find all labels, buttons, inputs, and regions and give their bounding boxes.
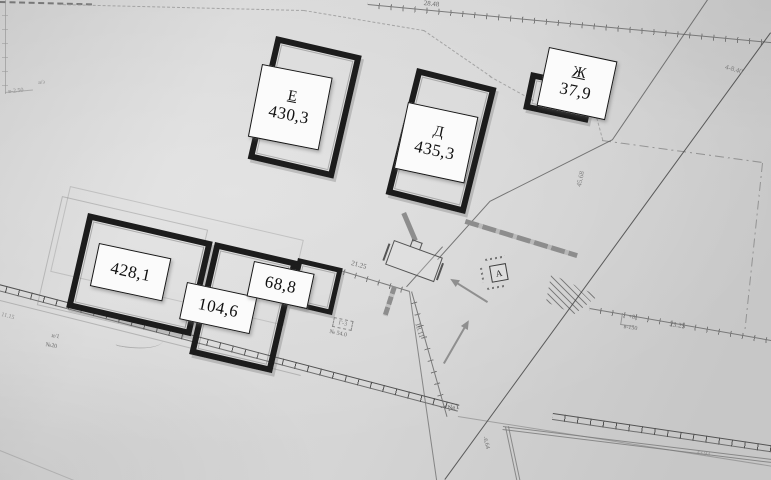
survey-line (409, 292, 437, 480)
direction-arrow-icon (452, 280, 488, 303)
gray-fence-segment (383, 285, 397, 316)
dimension-text: 21.25 (350, 260, 367, 271)
annotation-g3-box: Г-3 (332, 317, 354, 331)
boundary-dashed-line (304, 10, 424, 31)
building-area: 430,3 (267, 101, 311, 128)
building-area: 68,8 (263, 272, 298, 298)
building-area: 37,9 (558, 78, 593, 104)
dimension-text: 45.68 (576, 171, 586, 188)
boundary-dashed-line (423, 30, 491, 77)
building-letter: Е (286, 89, 298, 106)
survey-marker-ticks (485, 256, 505, 261)
site-plan-canvas: А Е 430,3 Д 435,3 Ж 37,9 428,1 104,6 68,… (0, 0, 771, 480)
annotation-g3-text: Г-3 (338, 320, 348, 328)
dimension-text: 43.93 (696, 450, 710, 458)
parcel-double-line (505, 426, 521, 480)
gate-tick (436, 263, 444, 280)
building-area: 435,3 (413, 137, 457, 165)
annotation-text: а/з (38, 79, 45, 86)
survey-marker-a: А (489, 263, 509, 283)
survey-line (612, 0, 708, 140)
boundary-dashdot-line (744, 163, 763, 332)
annotation-text: в-2.50 (8, 88, 24, 95)
dimension-text: №1 (447, 403, 460, 413)
building-area: 428,1 (109, 258, 153, 286)
gate-tick (382, 243, 390, 260)
annotation-text: и/1 (51, 333, 60, 340)
boundary-tick-line (367, 2, 771, 46)
dimension-text: 28.48 (423, 0, 439, 9)
dimension-text: -6.64 (481, 436, 490, 450)
label-building-d: Д 435,3 (394, 102, 479, 183)
survey-marker-ticks (480, 268, 485, 283)
corner-faint-line (0, 450, 74, 480)
annotation-text: №20 (45, 342, 58, 350)
gray-fence-segment (401, 212, 417, 242)
dimension-tick-line (332, 266, 410, 295)
annotation-leader-line (115, 331, 163, 354)
boundary-dashed-line (58, 4, 304, 11)
survey-marker-ticks (487, 285, 505, 290)
direction-arrow-icon (443, 322, 468, 364)
annotation-text: № 54.0 (329, 329, 348, 339)
gate-notch (410, 239, 423, 250)
building-area: 104,6 (196, 294, 240, 322)
left-boundary-ticks (2, 2, 8, 92)
gray-fence-segment (465, 219, 578, 258)
dimension-text: 23.25 (669, 321, 686, 330)
dimension-text: 11.15 (1, 312, 15, 321)
label-building-e: Е 430,3 (248, 64, 333, 150)
annotation-bracket (620, 313, 636, 327)
survey-line (489, 139, 613, 202)
survey-marker-letter: А (495, 267, 503, 278)
dimension-text: 4-8.40 (724, 64, 743, 76)
